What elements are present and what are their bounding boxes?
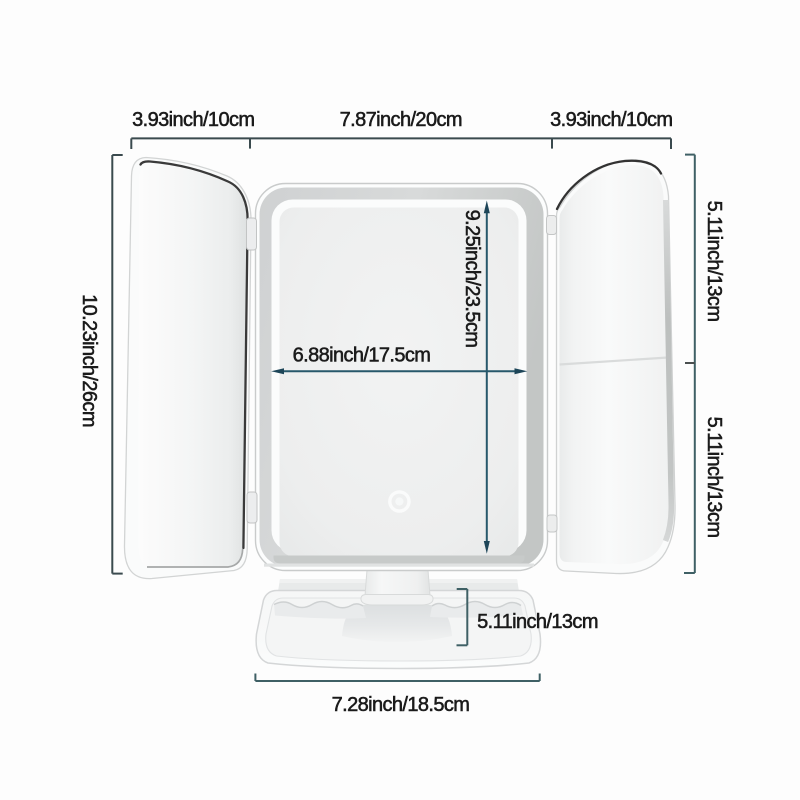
svg-text:5.11inch/13cm: 5.11inch/13cm: [703, 417, 725, 538]
svg-text:3.93inch/10cm: 3.93inch/10cm: [132, 109, 254, 131]
svg-text:7.28inch/18.5cm: 7.28inch/18.5cm: [332, 694, 470, 716]
svg-text:10.23inch/26cm: 10.23inch/26cm: [78, 294, 100, 427]
svg-text:9.25inch/23.5cm: 9.25inch/23.5cm: [461, 210, 483, 348]
svg-text:3.93inch/10cm: 3.93inch/10cm: [550, 109, 672, 131]
svg-text:7.87inch/20cm: 7.87inch/20cm: [340, 109, 462, 131]
svg-text:5.11inch/13cm: 5.11inch/13cm: [703, 201, 725, 322]
svg-text:6.88inch/17.5cm: 6.88inch/17.5cm: [293, 345, 431, 367]
svg-text:5.11inch/13cm: 5.11inch/13cm: [477, 611, 598, 633]
